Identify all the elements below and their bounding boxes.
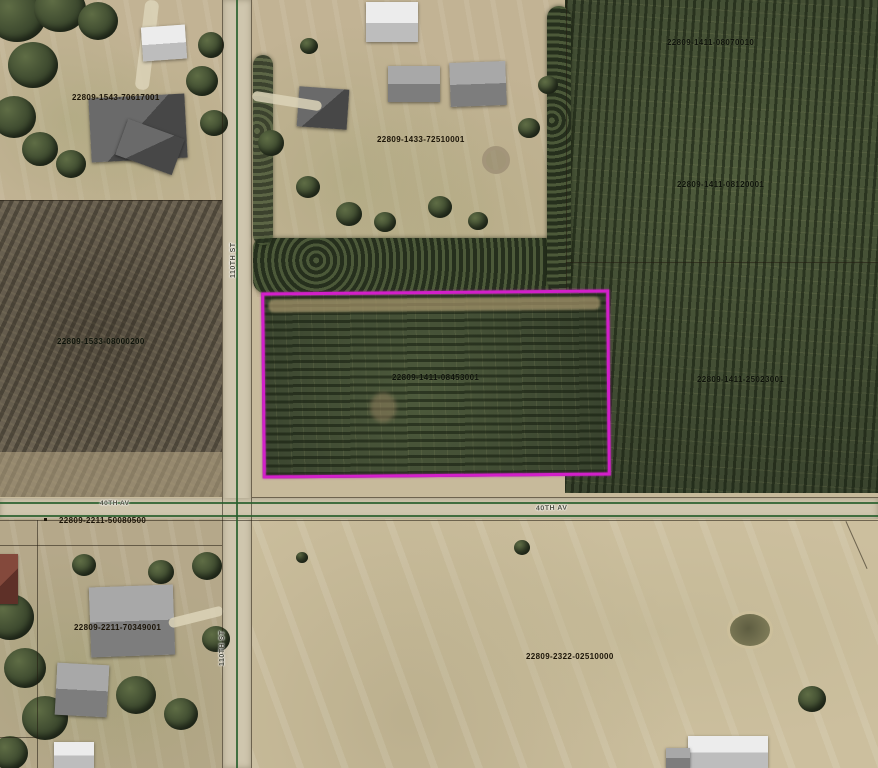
road-label-40th-av-west: 40TH AV [100, 501, 130, 508]
building-south-bottom-wing [666, 748, 690, 768]
dirt-row-top [268, 297, 600, 313]
parcel-line-sw-corner [0, 737, 37, 738]
tree [374, 212, 396, 232]
tree [22, 132, 58, 166]
pond [730, 614, 770, 646]
hedgerow-east-of-homestead [547, 6, 571, 292]
parcel-label: 22809-2322-02510000 [526, 653, 614, 661]
parcel-label: 22809-2211-70349001 [74, 624, 161, 632]
parcel-label: 22809-1433-72510001 [377, 136, 465, 144]
tree [336, 202, 362, 226]
tree [4, 648, 46, 688]
road-label-40th-av-center: 40TH AV [536, 505, 568, 513]
parcel-line-orchard-split [566, 262, 878, 263]
tree [538, 76, 558, 94]
hedgerow-south-of-homestead [253, 238, 569, 294]
parcel-line-road-north-edge [252, 497, 878, 498]
dirt-patch [370, 392, 396, 422]
parcel-label: 22809-1533-08000200 [57, 338, 145, 346]
tree [798, 686, 826, 712]
house-southwest-a [89, 585, 175, 658]
shed-southwest [54, 742, 94, 768]
tree [56, 150, 86, 178]
garage-northwest [141, 25, 187, 62]
round-garden-feature [482, 146, 510, 174]
tree [198, 32, 224, 58]
parcel-line-sw-vertical [37, 520, 38, 768]
tree [296, 176, 320, 198]
tree [78, 2, 118, 40]
tree [192, 552, 222, 580]
aerial-parcel-map[interactable]: 22809-1543-70617001 22809-1433-72510001 … [0, 0, 878, 768]
parcel-line-nw-woods [0, 200, 222, 201]
building-west-edge [0, 554, 18, 604]
tree [116, 676, 156, 714]
parcel-line-center-orchard [566, 0, 567, 291]
section-line-40th-av-north [0, 502, 878, 504]
road-label-110th-st-south: 110TH ST [219, 630, 226, 666]
house-north-c [449, 61, 507, 107]
parcel-label: 22809-1411-25023001 [697, 376, 784, 384]
tree [72, 554, 96, 576]
tree [468, 212, 488, 230]
house-north-b [388, 66, 440, 102]
road-label-110th-st-north: 110TH ST [230, 242, 237, 278]
tree [300, 38, 318, 54]
tree [148, 560, 174, 584]
tree [186, 66, 218, 96]
tree [296, 552, 308, 563]
parcel-line-east-road-edge [251, 0, 252, 768]
tree [428, 196, 452, 218]
parcel-line-sw-strip [0, 545, 222, 546]
house-southwest-b [55, 663, 110, 718]
parcel-label: 22809-1411-08120001 [677, 181, 764, 189]
parcel-label: 22809-1411-08070010 [667, 39, 754, 47]
tree [164, 698, 198, 730]
parcel-label-highlighted: 22809-1411-08453001 [392, 374, 479, 382]
open-field-parcel-south [252, 519, 878, 768]
tree [258, 130, 284, 156]
tree [518, 118, 540, 138]
highlighted-parcel-outline[interactable] [261, 289, 611, 478]
building-south-bottom [688, 736, 768, 768]
parcel-label: 22809-2211-50080500 [59, 517, 146, 525]
tree [200, 110, 228, 136]
barn-north [366, 2, 418, 42]
parcel-label: 22809-1543-70617001 [72, 94, 160, 102]
tree [8, 42, 58, 88]
tree [514, 540, 530, 555]
section-line-110th-st [236, 0, 238, 768]
orchard-parcel-east [565, 0, 878, 493]
woods-clearing-strip [0, 452, 222, 497]
survey-point [44, 518, 47, 521]
